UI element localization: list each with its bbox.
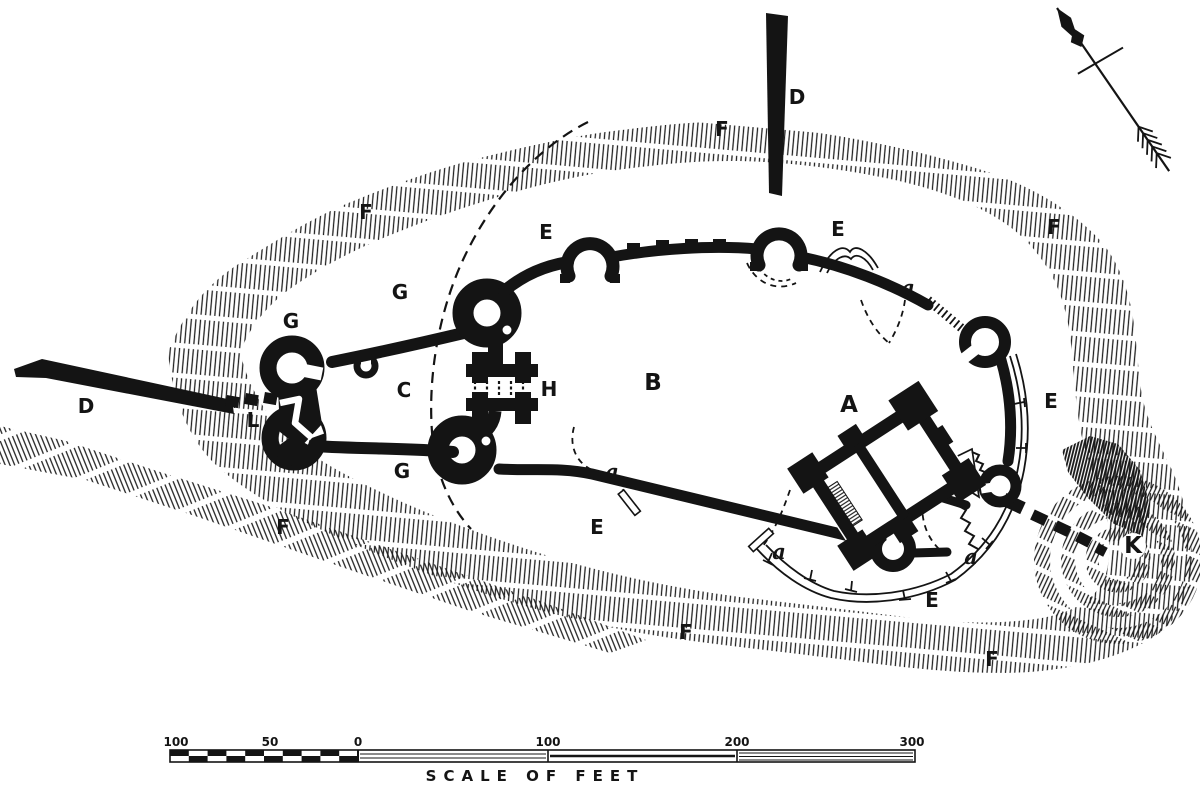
label-f-northwest: F (359, 200, 373, 224)
label-e-east: E (1044, 389, 1058, 413)
scale-tick-label: 300 (899, 735, 924, 749)
well-dot (502, 325, 512, 335)
label-a-east: a (964, 544, 978, 569)
label-l-causeway: L (247, 408, 260, 432)
outwork-north-wall (332, 332, 468, 362)
label-a-northeast: a (901, 275, 915, 300)
label-d-north: D (789, 85, 806, 109)
label-f-northeast: F (1047, 215, 1061, 239)
label-c-outwork: C (397, 378, 412, 402)
label-b-bailey: B (644, 370, 662, 396)
label-f-bottom: F (679, 620, 693, 644)
ramp-ladder (928, 300, 965, 331)
north-arrow-icon (1041, 0, 1196, 183)
horseshoe-tower-1 (567, 244, 613, 276)
label-e-northeast: E (831, 217, 845, 241)
label-a-keep: A (840, 392, 858, 418)
scale-tick-label: 0 (354, 735, 362, 749)
label-f-north: F (715, 117, 729, 141)
label-a-southeast: a (772, 539, 786, 564)
label-d-west: D (78, 394, 95, 418)
label-e-northwest: E (539, 220, 553, 244)
outer-scarp-hatch-band (168, 122, 1192, 673)
scale-caption: SCALE OF FEET (426, 767, 645, 785)
southwest-glacis-hatch (0, 426, 646, 653)
label-k-mound: K (1124, 533, 1143, 559)
label-g-lower: G (394, 459, 410, 483)
label-h-gatehouse: H (541, 377, 558, 401)
bailey-curtain-wall (499, 234, 1016, 566)
road-d-north (766, 13, 788, 196)
scale-tick-label: 100 (163, 735, 188, 749)
well-dot (481, 436, 491, 446)
postern-bridge-west (618, 490, 640, 516)
label-e-bottom: E (925, 588, 939, 612)
southwest-drum-tower (438, 426, 491, 474)
scale-tick-label: 200 (724, 735, 749, 749)
scale-tick-label: 100 (535, 735, 560, 749)
scale-bar: 100 50 0 100 200 300 (163, 735, 924, 785)
label-g-west: G (283, 309, 299, 333)
label-e-south: E (590, 515, 604, 539)
engraved-plan-page: D F F E E F G G a C H B A E D L G a E F … (0, 0, 1200, 789)
label-g-upper: G (392, 280, 408, 304)
horseshoe-tower-2 (757, 234, 801, 265)
scale-tick-label: 50 (262, 735, 279, 749)
label-f-southeast: F (985, 647, 999, 671)
castle-plan-figure: D F F E E F G G a C H B A E D L G a E F … (0, 0, 1200, 789)
label-f-southwest: F (276, 515, 290, 539)
zigzag-postern (957, 505, 978, 549)
label-a-south: a (605, 459, 619, 484)
